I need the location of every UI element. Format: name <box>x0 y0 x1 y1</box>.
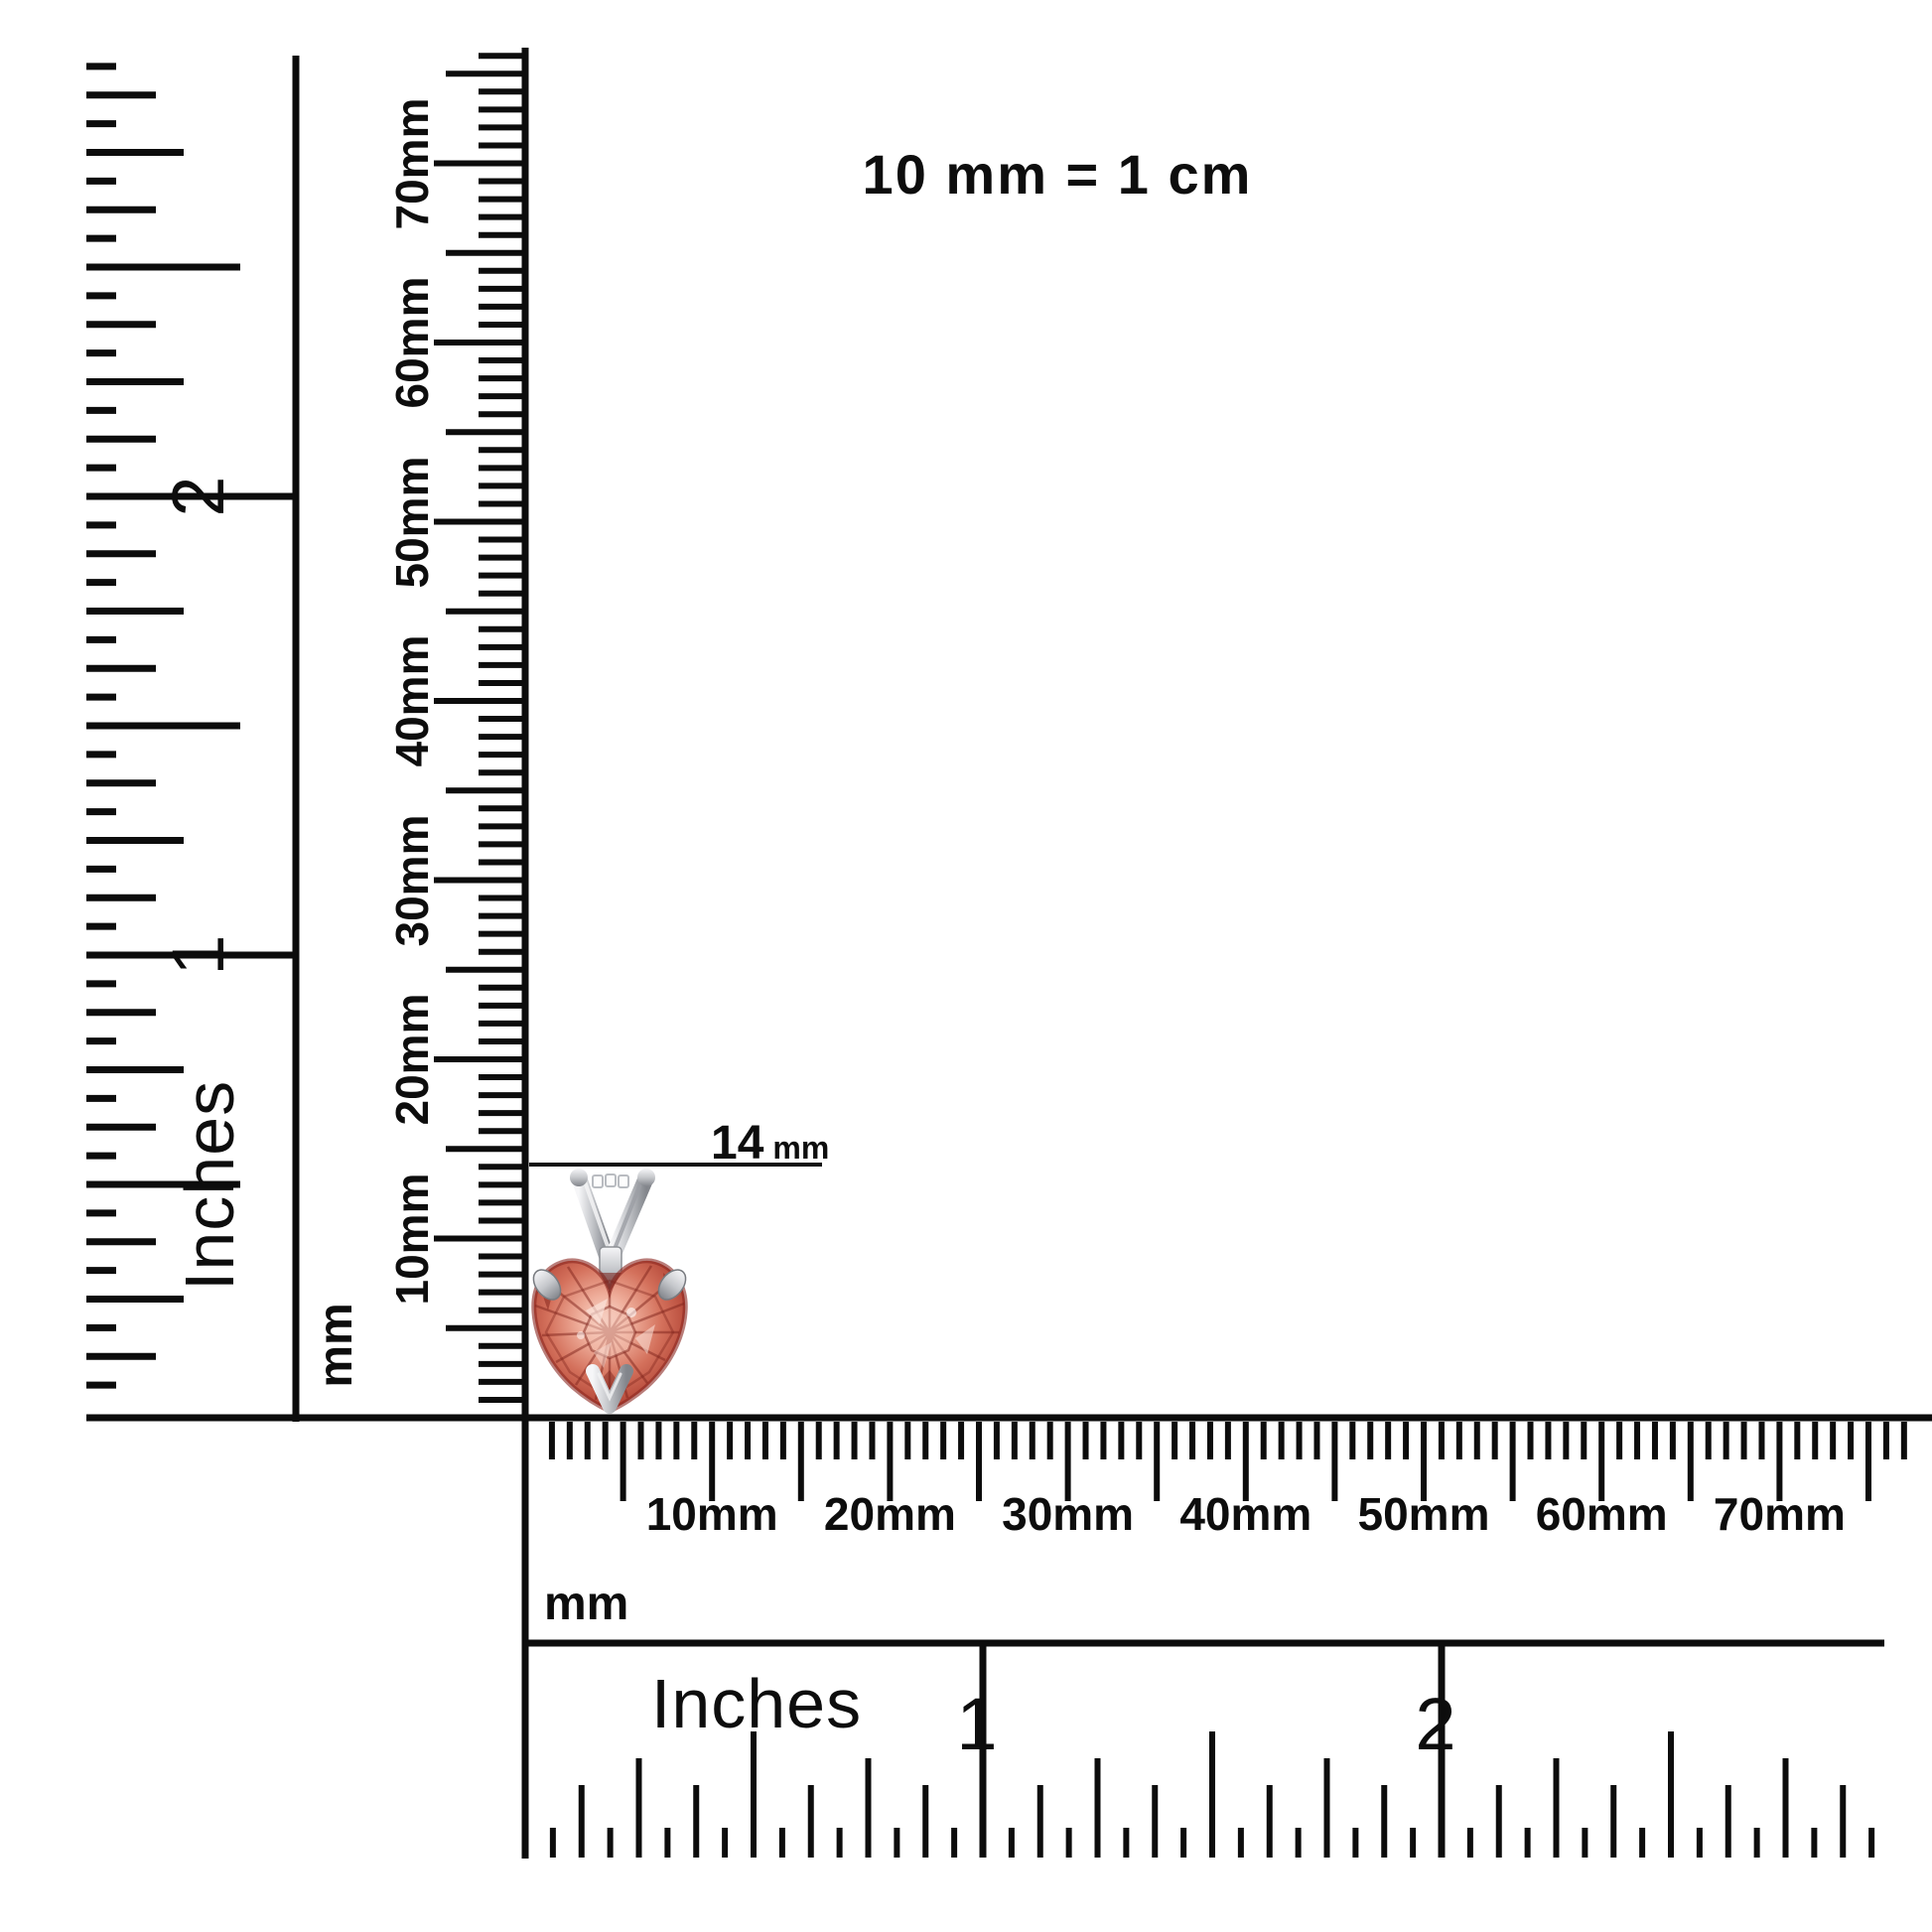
bottom-mm-ruler-label: 20mm <box>824 1491 956 1537</box>
product-measurement-image: 10 mm = 1 cm 14 mm Inches mm mm Inches <box>0 0 1932 1932</box>
bottom-inches-ruler-title: Inches <box>651 1669 862 1738</box>
left-inches-numeral: 1 <box>162 934 235 975</box>
bottom-inches-numeral: 2 <box>1415 1688 1455 1761</box>
bail-chain-links <box>593 1174 628 1187</box>
bail-knob-left <box>570 1169 588 1186</box>
ruler-border-lines <box>86 48 1932 1859</box>
bottom-mm-ruler-label: 50mm <box>1358 1491 1490 1537</box>
vertical-mm-ruler-label: 70mm <box>389 97 435 229</box>
bottom-mm-ruler-label: 30mm <box>1002 1491 1134 1537</box>
vertical-mm-ruler-label: 10mm <box>389 1173 435 1305</box>
bottom-mm-ruler-label: 10mm <box>646 1491 778 1537</box>
ruler-ticks <box>0 0 1932 1932</box>
vertical-mm-ruler-label: 20mm <box>389 994 435 1126</box>
bottom-mm-ruler-label: 40mm <box>1179 1491 1311 1537</box>
vertical-mm-ruler-label: 30mm <box>389 814 435 946</box>
vertical-mm-ruler-label: 50mm <box>389 456 435 588</box>
bottom-mm-ruler-title: mm <box>544 1581 628 1628</box>
bail-knob-right <box>637 1169 655 1186</box>
bottom-mm-ruler-label: 70mm <box>1714 1491 1846 1537</box>
left-inches-ruler-title: Inches <box>175 1080 244 1291</box>
bottom-mm-ruler-label: 60mm <box>1536 1491 1668 1537</box>
bottom-inches-numeral: 1 <box>956 1688 997 1761</box>
scale-note: 10 mm = 1 cm <box>863 147 1253 203</box>
vertical-mm-ruler-label: 40mm <box>389 635 435 767</box>
dimension-label: 14 mm <box>711 1120 829 1168</box>
pendant-photo <box>491 1140 720 1430</box>
dimension-unit: mm <box>772 1132 829 1164</box>
vertical-mm-ruler-title: mm <box>313 1303 360 1387</box>
left-inches-numeral: 2 <box>162 476 235 516</box>
vertical-mm-ruler-label: 60mm <box>389 277 435 409</box>
